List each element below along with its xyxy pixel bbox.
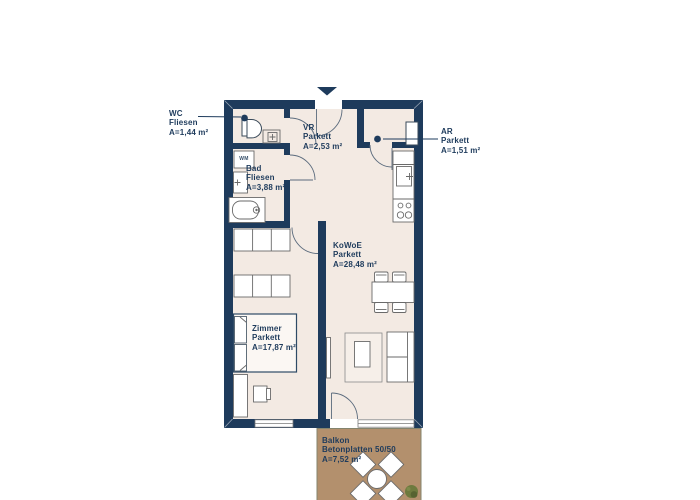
wall-bad-hall-upper bbox=[284, 149, 290, 155]
tv-icon bbox=[327, 338, 331, 379]
wc-area: A=1,44 m² bbox=[169, 128, 208, 137]
balkon-material: Betonplatten 50/50 bbox=[322, 445, 396, 454]
wall-left bbox=[224, 100, 233, 428]
coffee-table-icon bbox=[345, 333, 382, 382]
plant-icon bbox=[405, 485, 418, 498]
wall-wc-bad bbox=[233, 143, 290, 149]
toilet-tank bbox=[242, 120, 247, 136]
balkon-area: A=7,52 m² bbox=[322, 455, 396, 464]
kitchen-counter bbox=[393, 151, 414, 222]
vr-area: A=2,53 m² bbox=[303, 142, 342, 151]
dining-chair-icon bbox=[393, 272, 407, 282]
zimmer-label: Zimmer Parkett A=17,87 m² bbox=[252, 324, 296, 352]
dining-table-icon bbox=[372, 282, 414, 303]
dining-chair-icon bbox=[375, 272, 389, 282]
bad-material: Fliesen bbox=[246, 173, 285, 182]
ar-label: AR Parkett A=1,51 m² bbox=[441, 127, 480, 155]
dining-chair-icon bbox=[375, 303, 389, 313]
wardrobe-row-2 bbox=[234, 275, 290, 297]
bad-name: Bad bbox=[246, 164, 285, 173]
ar-material: Parkett bbox=[441, 136, 480, 145]
ar-name: AR bbox=[441, 127, 480, 136]
vr-material: Parkett bbox=[303, 132, 342, 141]
zimmer-area: A=17,87 m² bbox=[252, 343, 296, 352]
kowoe-name: KoWoE bbox=[333, 241, 377, 250]
zimmer-material: Parkett bbox=[252, 333, 296, 342]
wall-ar-bottom-left bbox=[357, 142, 370, 148]
wardrobe-row-1 bbox=[234, 229, 290, 251]
kowoe-area: A=28,48 m² bbox=[333, 260, 377, 269]
desk-icon bbox=[234, 375, 248, 418]
bathtub-icon bbox=[229, 198, 265, 223]
desk-chair-icon bbox=[254, 386, 271, 402]
wc-name: WC bbox=[169, 109, 208, 118]
wall-zimmer-kowoe bbox=[318, 221, 326, 419]
floor-plan: WC Fliesen A=1,44 m² VR Parkett A=2,53 m… bbox=[0, 0, 700, 500]
sofa-icon bbox=[387, 332, 414, 382]
ar-area: A=1,51 m² bbox=[441, 146, 480, 155]
kowoe-label: KoWoE Parkett A=28,48 m² bbox=[333, 241, 377, 269]
bad-area: A=3,88 m² bbox=[246, 183, 285, 192]
entrance-opening bbox=[315, 100, 342, 109]
bad-label: Bad Fliesen A=3,88 m² bbox=[246, 164, 285, 192]
ar-wall-niche bbox=[406, 122, 418, 145]
ar-leader-dot bbox=[374, 136, 381, 143]
entrance-arrow-icon bbox=[317, 87, 337, 96]
wall-right bbox=[414, 100, 423, 428]
washing-machine-label: WM bbox=[234, 156, 254, 162]
vr-label: VR Parkett A=2,53 m² bbox=[303, 123, 342, 151]
toilet-icon bbox=[247, 120, 261, 138]
vr-name: VR bbox=[303, 123, 342, 132]
dining-chair-icon bbox=[393, 303, 407, 313]
balkon-label: Balkon Betonplatten 50/50 A=7,52 m² bbox=[322, 436, 396, 464]
balkon-name: Balkon bbox=[322, 436, 396, 445]
kitchen-fixtures bbox=[393, 151, 414, 222]
wc-label: WC Fliesen A=1,44 m² bbox=[169, 109, 208, 137]
wc-leader-dot bbox=[241, 115, 248, 122]
kowoe-material: Parkett bbox=[333, 250, 377, 259]
wc-material: Fliesen bbox=[169, 118, 208, 127]
wall-wc-vr bbox=[284, 109, 290, 118]
zimmer-name: Zimmer bbox=[252, 324, 296, 333]
balcony-table-icon bbox=[368, 470, 387, 489]
